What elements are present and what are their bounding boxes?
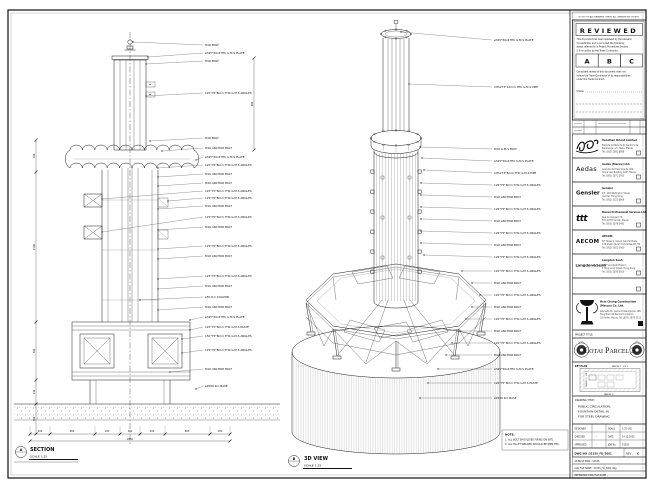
reviewed-text: under the Trade Contract.	[577, 78, 605, 81]
reviewed-text: 5.4 for action by the Trade Contractor.	[577, 49, 619, 52]
rev-label: REV :	[626, 451, 633, 455]
consultant-addr: Tel: (852) 2830 3500	[602, 270, 625, 273]
parcel-label-left: PARCEL 1, LOT 1	[585, 370, 588, 387]
signoff-value: 1:25 (A1)	[622, 428, 632, 431]
svg-text:200: 200	[150, 430, 155, 433]
svg-text:320: 320	[33, 153, 36, 158]
iso-view: ø345*50x4THK G.M.S PLATE CHS273*12mm THK…	[289, 20, 569, 469]
callout-label: 125*75*8mm THK G.M.S ANGLES	[205, 215, 252, 219]
drawing-title-block: DRAWING TITLE: PUBLIC CIRCULATION, FOUNT…	[573, 396, 647, 424]
callout-label: M16 ANCHOR BOLT	[494, 219, 521, 223]
option-c: C	[629, 58, 634, 66]
consultant-name: Langdon Seah	[602, 258, 623, 262]
project-title: Cotai Parcel 3	[584, 346, 635, 355]
note-line: 2. ALL FILLET WELDED SHOULD BE 6MM THK.	[505, 443, 560, 446]
callout-label: ø345*50x4THK G.M.S PLATE	[205, 51, 245, 55]
iso-pipes	[380, 20, 412, 131]
svg-text:450: 450	[128, 430, 133, 433]
callout-label: CHS273*8mm THK G.M.S PIPE	[494, 171, 536, 175]
consultant-checkbox	[637, 287, 641, 291]
callout-label: M16 ANCHOR BOLT	[205, 146, 232, 150]
contractor-block: Hsin Chong Construction (Macau) Co. Ltd.…	[573, 294, 647, 330]
contractor-addr: 19 Andar, Macau Tel: (853) 2875 3511	[600, 316, 642, 319]
callout-label: CHS273*12mm THK G.M.S PIPE	[494, 85, 538, 89]
callout-label: M16 BOLT	[205, 136, 219, 140]
consultant-checkbox	[637, 271, 641, 275]
section-view: M16 BOLT ø345*50x4THK G.M.S PLATE M16 BO…	[14, 32, 280, 462]
consultant-name: Aedas (Macau) Ltd.	[602, 162, 630, 166]
reviewed-stamp: REVIEWED This document has been reviewed…	[573, 20, 647, 120]
venetian-logo	[577, 140, 598, 151]
option-a: A	[584, 58, 589, 66]
contractor-stamp-square	[638, 321, 643, 326]
view-scale: SCALE 1:25	[30, 455, 47, 459]
callout-label: 125*75*8mm THK G.M.S ANGLES	[205, 244, 252, 248]
note-title: NOTE:	[505, 433, 515, 437]
gensler-logo: Gensler	[576, 191, 600, 197]
key-plan: KEY PLAN PARCEL 1, LOT 2 PARCEL 1, LOT 1…	[573, 362, 647, 396]
date-label: Date :	[577, 89, 586, 93]
drawing-title-line: FOR STEEL DRAWING	[578, 415, 611, 419]
callout-label: 125*75*8mm THK G.M.S ANGLES	[494, 317, 541, 321]
signoff-label: DATE	[608, 436, 614, 439]
view-bubble: B	[293, 457, 296, 461]
signoff-value: 51535	[622, 444, 630, 447]
file-rows: AS BUILT DWG : 51535 CAD FILE NAME : 515…	[573, 457, 647, 478]
consultant-checkbox	[637, 151, 641, 155]
callout-label: ø50 R.C COLUMN	[205, 295, 229, 299]
callout-label: 125*75*8mm THK G.M.S ANGLES	[494, 255, 541, 259]
callout-label: M16 BOLT	[205, 59, 219, 63]
drawing-title-label: DRAWING TITLE:	[575, 399, 595, 402]
reviewed-text: relieve the Trade Contractor of its resp…	[577, 74, 632, 77]
svg-text:200: 200	[38, 430, 43, 433]
svg-text:200: 200	[218, 430, 223, 433]
reviewed-title: REVIEWED	[580, 27, 638, 35]
note-box: NOTE: 1. ALL BOLT SHOULD BE FIXING ON SI…	[502, 430, 568, 450]
title-block: DO NOT SCALE DRAWING. VERIFY ALL DIMENSI…	[573, 12, 647, 478]
drawing-title-line: FOUNTAIN DETAIL IN	[578, 410, 609, 414]
svg-text:1500: 1500	[33, 243, 36, 250]
dwg-number-row: DWG NO : 51535_FD_5001 REV : C	[573, 448, 647, 457]
reviewed-text: Consultant(s) and is accorded the follow…	[577, 42, 625, 45]
callout-label: M16 ANCHOR BOLT	[494, 281, 521, 285]
callout-label: 125*75*8mm THK G.M.S ANGLES	[494, 341, 541, 345]
ttt-logo: ttt	[576, 214, 588, 224]
file-row: AS BUILT DWG : 51535	[575, 460, 601, 463]
consultant-name: AECOM	[602, 234, 613, 238]
callout-label: M16 ANCHOR BOLT	[205, 172, 232, 176]
file-row: CAD FILE NAME : 51535_FD_5001.dwg	[575, 467, 618, 470]
callout-label: ø345*50x4THK G.M.S PLATE	[494, 38, 534, 42]
view-bubble: A	[20, 448, 23, 452]
consultant-addr: Tel: (852) 2523 8866	[602, 198, 625, 201]
signoff-label: CHECKED	[575, 436, 586, 439]
svg-text:580: 580	[33, 348, 36, 353]
svg-text:240: 240	[33, 389, 36, 394]
consultant-name: Venetian Orient Limited	[602, 138, 637, 142]
callout-label: M16 ANCHOR BOLT	[494, 195, 521, 199]
signoff-value: 14.12.2015	[622, 436, 635, 439]
consultant-checkbox	[637, 247, 641, 251]
view-title: 3D VIEW	[304, 456, 329, 462]
sheet-svg: M16 BOLT ø345*50x4THK G.M.S PLATE M16 BO…	[0, 0, 650, 488]
consultant-name: Gensler	[602, 186, 614, 190]
callout-label: 125*75*8mm THK G.M.S ANGLES	[205, 163, 252, 167]
callout-label: ø2500 R.C BASE	[205, 384, 228, 388]
iso-collar	[370, 130, 422, 154]
callout-label: 125*75*8mm THK G.M.S ANGLES	[205, 196, 252, 200]
reviewed-text: status referred to in Project Procedures…	[577, 46, 629, 49]
callout-label: M16 ANCHOR BOLT	[494, 329, 521, 333]
project-title-label: PROJECT TITLE:	[575, 334, 594, 337]
callout-label: 125*75*8mm THK G.M.S ANGLES	[205, 274, 252, 278]
callout-label: M16 ANCHOR BOLT	[205, 284, 232, 288]
aedas-logo: Aedas	[576, 165, 597, 173]
callout-label: M16 ANCHOR BOLT	[205, 225, 232, 229]
iso-view-label: B 3D VIEW SCALE 1:25	[289, 456, 353, 469]
svg-text:2850: 2850	[127, 438, 134, 441]
file-row: REFERENCE DWG FILE NAME :	[575, 474, 608, 477]
callout-label: 125*75*8mm THK G.M.S PLATE	[494, 381, 538, 385]
callout-label: M16 G.M.S BOLT	[494, 147, 517, 151]
signoff-value: -	[596, 444, 597, 447]
signoff-label: DESIGNED	[575, 428, 587, 431]
section-callout-labels: M16 BOLT ø345*50x4THK G.M.S PLATE M16 BO…	[205, 43, 252, 388]
contractor-name: Hsin Chong Construction	[600, 300, 636, 304]
callout-label: M16 ANCHOR BOLT	[205, 204, 232, 208]
reviewed-text: This document has been reviewed by the r…	[577, 38, 632, 41]
callout-label: 125*75*8mm THK G.M.S ANGLES	[494, 183, 541, 187]
consultant-addr: Tel: (852) 3922 9000	[602, 246, 625, 249]
consultant-rows: Venetian Orient Limited Estrada da Baía …	[573, 134, 647, 294]
option-b: B	[607, 58, 612, 66]
callout-label: 125*75*8mm THK G.M.S ANGLES	[494, 293, 541, 297]
svg-text:800: 800	[185, 430, 190, 433]
aecom-logo: AECOM	[576, 239, 599, 245]
callout-label: 125*75*8mm THK G.M.S ANGLES	[494, 207, 541, 211]
edge-note: DO NOT SCALE DRAWING. VERIFY ALL DIMENSI…	[579, 15, 640, 18]
contractor-logo	[577, 300, 598, 325]
signoff-value: -	[596, 436, 597, 439]
callout-label: 125*75*8mm THK G.M.S ANGLES	[205, 348, 252, 352]
callout-label: ø345*50x4THK G.M.S PLATE	[205, 155, 245, 159]
callout-label: 150*75*8mm THK G.M.S ANGLES	[205, 334, 252, 338]
consultant-addr: Tel: (853) 2878 5483	[602, 222, 625, 225]
callout-label: M16 ANCHOR BOLT	[494, 305, 521, 309]
drawing-title-line: PUBLIC CIRCULATION,	[578, 405, 611, 409]
callout-label: M16 BOLT	[205, 43, 219, 47]
svg-text:200: 200	[105, 430, 110, 433]
rev-value: C	[637, 451, 639, 455]
svg-text:300: 300	[33, 416, 36, 421]
dwg-no: 51535_FD_5001	[589, 451, 612, 455]
callout-label: M16 ANCHOR BOLT	[205, 367, 232, 371]
callout-label: ø345*50x4THK G.M.S PLATE	[494, 367, 534, 371]
signoff-label: SCALE	[608, 428, 616, 431]
signoff-label: JOB No.	[607, 444, 616, 447]
callout-label: 125*75*8mm THK G.M.S PLATE	[205, 325, 249, 329]
consultant-checkbox	[637, 223, 641, 227]
svg-text:800: 800	[70, 430, 75, 433]
callout-label: ø2500 R.C BASE	[494, 396, 517, 400]
callout-label: 125*75*8mm THK G.M.S ANGLES	[205, 91, 252, 95]
callout-label: M16 ANCHOR BOLT	[494, 353, 521, 357]
consultant-checkbox	[637, 175, 641, 179]
reviewed-text: Consultant review of this document does …	[577, 71, 626, 74]
callout-label: ø345*50x4THK G.M.S PLATE	[494, 159, 534, 163]
section-view-label: A SECTION SCALE 1:25	[14, 447, 78, 463]
signoff-table: DESIGNED SCALE 1:25 (A1) CHECKED - DATE …	[573, 424, 647, 448]
view-title: SECTION	[30, 447, 54, 453]
callout-label: 125*75*8mm THK G.M.S ANGLES	[494, 269, 541, 273]
callout-label: M16 ANCHOR BOLT	[205, 181, 232, 185]
callout-label: 125*75*8mm THK G.M.S ANGLES	[494, 231, 541, 235]
revision-strip	[573, 120, 647, 134]
signoff-label: APPROVED	[575, 444, 587, 447]
parcel-label-bottom: PARCEL 3	[604, 393, 614, 396]
dwg-no-label: DWG NO :	[575, 451, 589, 455]
note-line: 1. ALL BOLT SHOULD BE FIXING ON SITE.	[505, 439, 554, 442]
contractor-name2: (Macau) Co. Ltd.	[600, 304, 624, 308]
project-title-band: Cotai Parcel 3	[573, 338, 647, 362]
callout-label: M16 ANCHOR BOLT	[205, 305, 232, 309]
callout-label: 125*75*8mm THK G.M.S ANGLES	[205, 189, 252, 193]
svg-text:900: 900	[251, 101, 254, 106]
callout-label: ø345*50x4THK G.M.S PLATE	[205, 315, 245, 319]
consultant-addr: Tel: (853) 2871 5953	[602, 174, 625, 177]
view-scale: SCALE 1:25	[304, 464, 321, 468]
iso-shaft	[371, 150, 421, 308]
key-plan-label: KEY PLAN	[575, 365, 587, 368]
parcel-label-top: PARCEL 1, LOT 2	[612, 365, 629, 368]
consultant-name: Macau Professional Services Ltd.	[602, 211, 647, 214]
callout-label: M16 ANCHOR BOLT	[205, 254, 232, 258]
iso-callout-labels: ø345*50x4THK G.M.S PLATE CHS273*12mm THK…	[494, 38, 541, 400]
callout-label: M16 ANCHOR BOLT	[494, 243, 521, 247]
drawing-sheet: M16 BOLT ø345*50x4THK G.M.S PLATE M16 BO…	[0, 0, 650, 488]
consultant-checkbox	[637, 199, 641, 203]
consultant-addr: Tel: (853) 2882 8888	[602, 150, 625, 153]
